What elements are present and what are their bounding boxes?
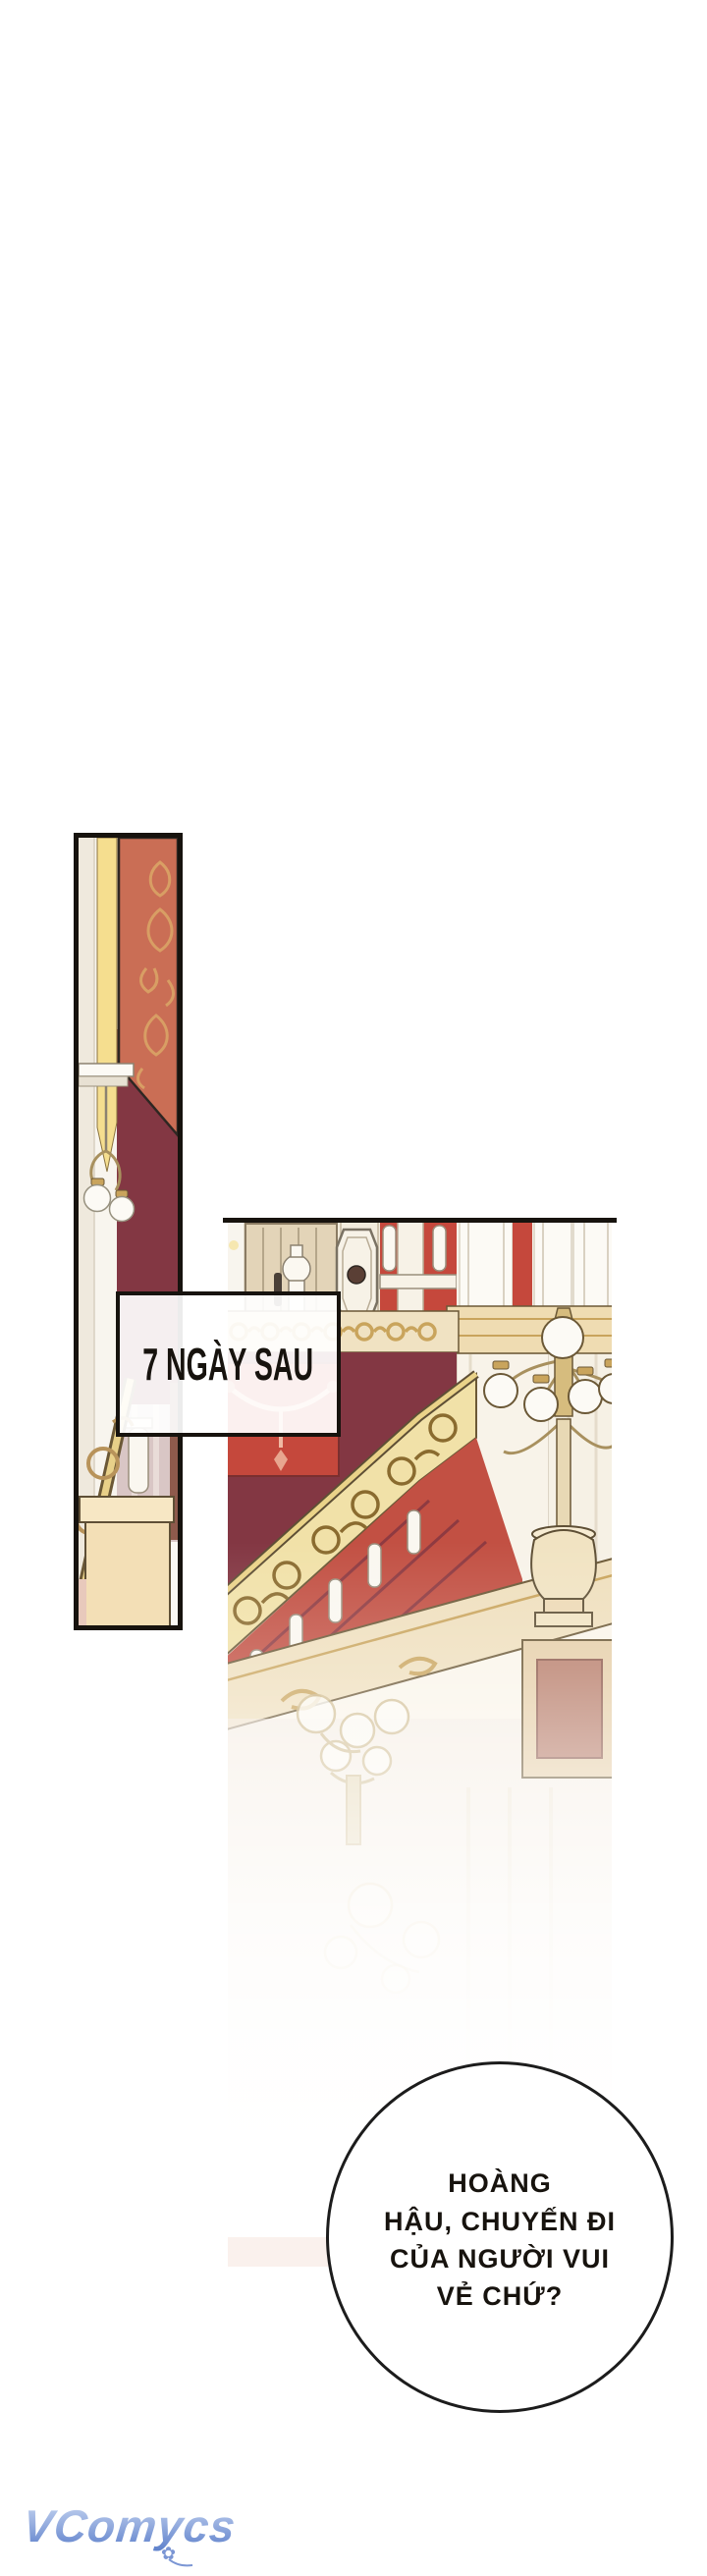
speech-line: VẺ CHỨ? <box>384 2277 616 2315</box>
balcony-ledge <box>447 1306 617 1353</box>
manhwa-page: 7 NGÀY SAU HOÀNG HẬU, CHUYẾN ĐI CỦA NGƯỜ… <box>0 0 707 2576</box>
watermark-logo: VComycs ✿ <box>22 2485 257 2573</box>
speech-line: HOÀNG <box>384 2165 616 2202</box>
panel-left-artwork <box>74 833 183 1630</box>
speech-line: CỦA NGƯỜI VUI <box>384 2240 616 2277</box>
panel-left <box>74 833 183 1630</box>
speech-bubble: HOÀNG HẬU, CHUYẾN ĐI CỦA NGƯỜI VUI VẺ CH… <box>326 2061 674 2413</box>
speech-bubble-text: HOÀNG HẬU, CHUYẾN ĐI CỦA NGƯỜI VUI VẺ CH… <box>384 2165 616 2315</box>
narration-box: 7 NGÀY SAU <box>116 1291 341 1437</box>
wall-plaque <box>337 1230 377 1320</box>
narration-text: 7 NGÀY SAU <box>143 1338 314 1391</box>
watermark-flower-icon: ✿ <box>161 2544 176 2563</box>
watermark-text: VComycs <box>22 2500 239 2551</box>
speech-line: HẬU, CHUYẾN ĐI <box>384 2203 616 2240</box>
newel-pedestal <box>79 1497 174 1626</box>
